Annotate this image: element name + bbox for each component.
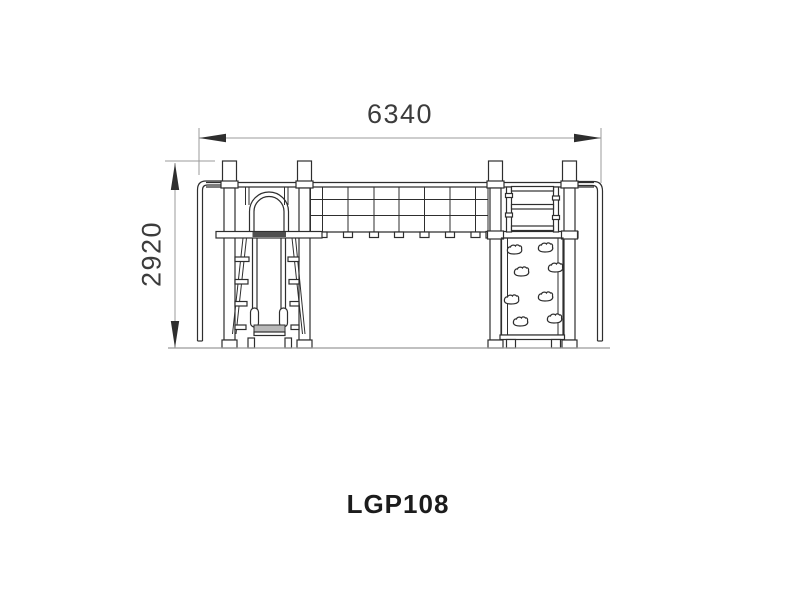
slide-exit — [254, 325, 285, 332]
slide-entry-arch — [250, 192, 289, 232]
product-code-label: LGP108 — [347, 489, 450, 519]
dimension-arrow-icon — [171, 163, 179, 190]
drawing-canvas: 6340 2920 LGP108 — [0, 0, 800, 600]
slide-front-view — [251, 232, 288, 336]
structure — [168, 161, 610, 348]
slide-tower — [216, 161, 322, 348]
dimension-arrow-icon — [574, 134, 601, 142]
guardrail-panel — [506, 187, 560, 233]
slide-rail-end — [280, 308, 288, 327]
wall-base — [500, 335, 565, 340]
width-dimension: 6340 — [199, 99, 601, 183]
climbing-net-bridge — [311, 187, 491, 238]
climbing-hold-icon — [538, 292, 552, 301]
dimension-arrow-icon — [171, 321, 179, 348]
net-deck-tabs — [318, 232, 480, 238]
climbing-hold-icon — [548, 263, 562, 272]
right-end-pole — [576, 182, 603, 342]
tower-feet — [488, 340, 577, 349]
climbing-hold-icon — [538, 243, 552, 252]
left-end-pole — [198, 181, 225, 341]
tower-post — [221, 161, 238, 340]
playground-elevation-drawing: 6340 2920 LGP108 — [0, 0, 800, 600]
tower-post — [296, 161, 313, 340]
climbing-hold-icon — [514, 267, 528, 276]
height-dimension: 2920 — [136, 161, 215, 348]
ladder-rungs — [235, 257, 299, 330]
climbing-hold-icon — [513, 317, 527, 326]
climbing-hold-icon — [547, 314, 561, 323]
dimension-height-label: 2920 — [136, 221, 166, 287]
ladder-braces — [233, 238, 306, 334]
climbing-hold-icon — [507, 245, 521, 254]
tower-feet — [222, 338, 312, 348]
climbing-wall — [500, 238, 565, 340]
climbing-tower — [486, 161, 578, 348]
climbing-hold-icon — [504, 295, 518, 304]
dimension-arrow-icon — [199, 134, 226, 142]
dimension-width-label: 6340 — [367, 99, 433, 129]
climbing-holds — [504, 243, 562, 326]
post-deck-collar — [562, 231, 578, 239]
slide-rail-end — [251, 308, 259, 327]
